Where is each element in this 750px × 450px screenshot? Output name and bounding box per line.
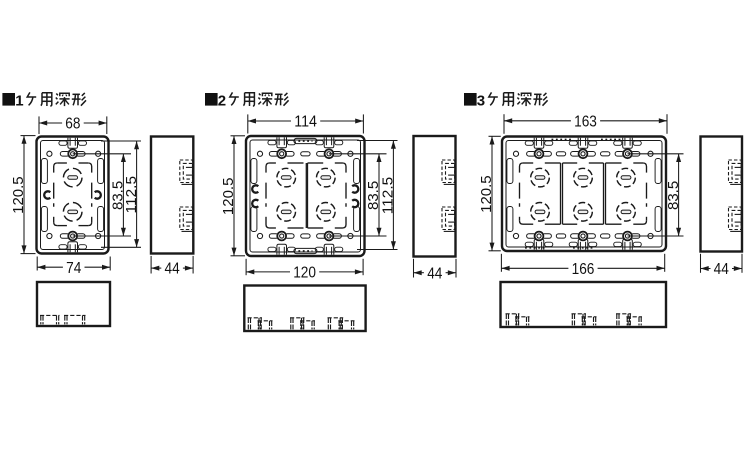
svg-text:114: 114	[294, 114, 317, 131]
svg-text:120.5: 120.5	[479, 175, 495, 213]
svg-text:112.5: 112.5	[381, 177, 397, 215]
svg-text:44: 44	[427, 265, 443, 282]
svg-text:74: 74	[66, 260, 82, 277]
svg-text:120: 120	[293, 265, 316, 282]
svg-text:83.5: 83.5	[666, 181, 682, 210]
svg-text:112.5: 112.5	[124, 176, 140, 214]
svg-text:2: 2	[218, 93, 226, 110]
svg-text:1: 1	[15, 93, 23, 110]
svg-text:68: 68	[65, 116, 80, 133]
svg-text:44: 44	[165, 261, 181, 278]
svg-text:166: 166	[572, 261, 595, 278]
svg-text:44: 44	[714, 261, 730, 278]
svg-text:3: 3	[477, 93, 485, 110]
svg-text:163: 163	[574, 113, 597, 130]
svg-text:120.5: 120.5	[11, 176, 27, 214]
svg-text:120.5: 120.5	[221, 178, 237, 216]
